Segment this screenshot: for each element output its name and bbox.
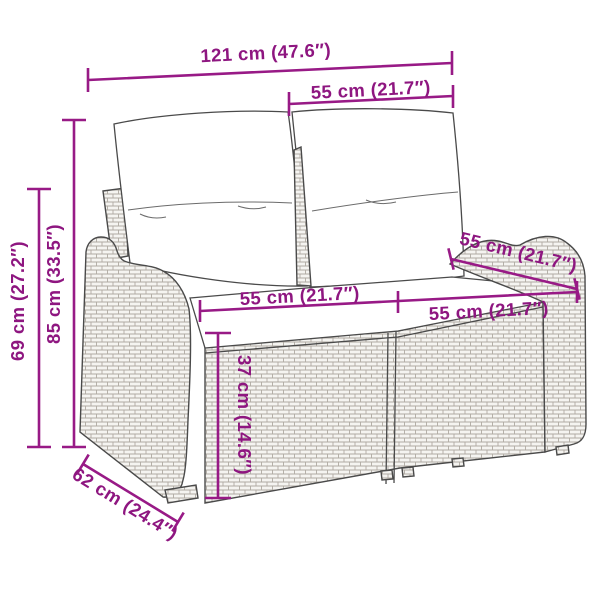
bench-dimension-diagram: 121 cm (47.6″) 55 cm (21.7″) 85 cm (33.5… — [0, 0, 600, 600]
diagram-canvas: 121 cm (47.6″) 55 cm (21.7″) 85 cm (33.5… — [0, 0, 600, 600]
back-cushion-left — [114, 111, 307, 286]
dim-total-height: 85 cm (33.5″) — [43, 120, 86, 447]
left-armrest — [80, 237, 191, 497]
dim-total-width-label: 121 cm (47.6″) — [200, 39, 332, 66]
back-cushion-right — [292, 109, 464, 287]
dim-armrest-height-label: 69 cm (27.2″) — [7, 241, 28, 361]
dim-total-height-label: 85 cm (33.5″) — [43, 224, 64, 344]
dim-seat-height-label: 37 cm (14.6″) — [234, 355, 255, 475]
